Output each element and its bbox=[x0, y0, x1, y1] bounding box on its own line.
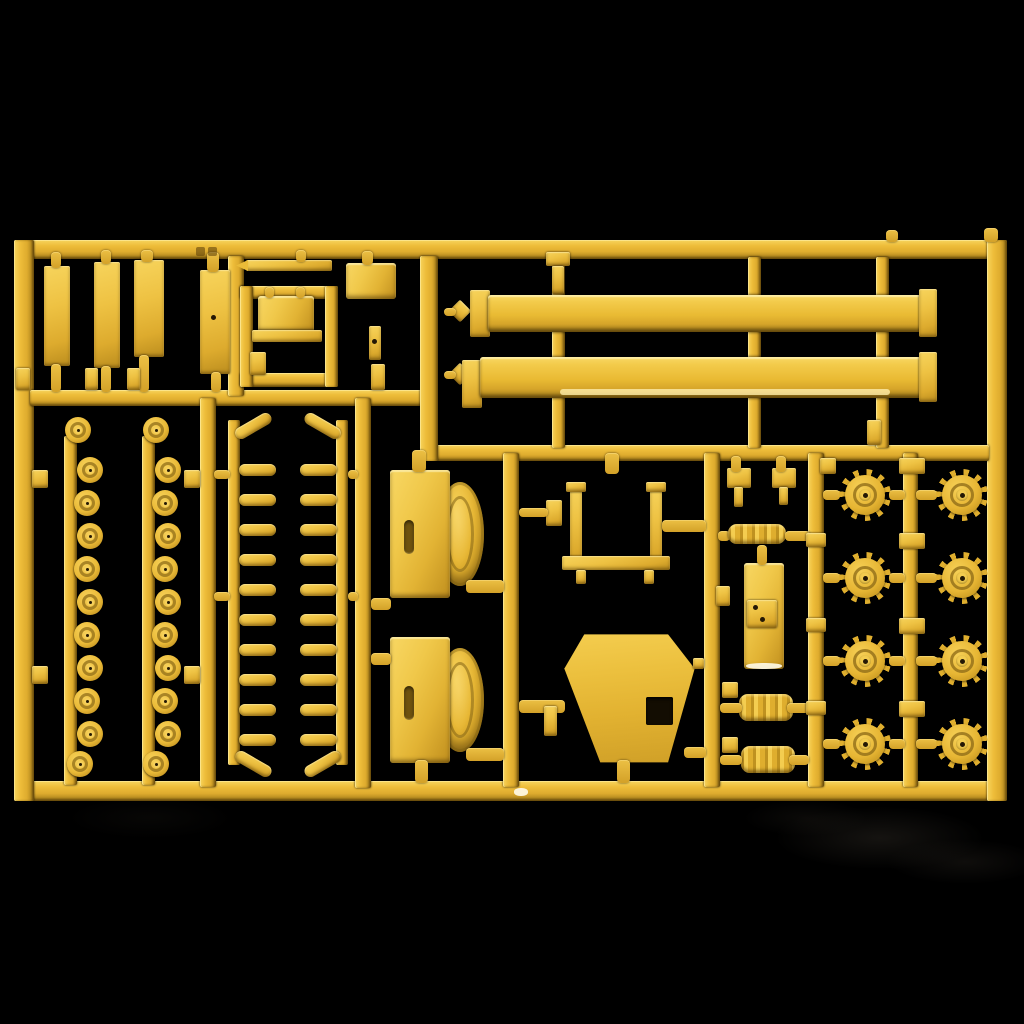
suspension-arm bbox=[300, 584, 337, 596]
hatch-plate bbox=[346, 263, 396, 299]
small-tab bbox=[693, 658, 704, 669]
suspension-arm bbox=[300, 494, 337, 506]
road-wheel-hole bbox=[167, 469, 170, 472]
gate-stub bbox=[889, 739, 905, 749]
road-wheel-hole bbox=[167, 601, 170, 604]
gate-stub bbox=[101, 250, 111, 264]
road-wheel-hole bbox=[77, 429, 80, 432]
suspension-arm bbox=[239, 584, 276, 596]
drive-sprocket-hole bbox=[960, 742, 965, 747]
gate-runner bbox=[876, 257, 889, 299]
gate-stub bbox=[916, 490, 937, 500]
gate-stub bbox=[348, 592, 358, 601]
gate-stub bbox=[776, 456, 786, 472]
mold-mark bbox=[208, 247, 217, 256]
gate-stub bbox=[415, 760, 428, 783]
suspension-arm bbox=[239, 704, 276, 716]
gate-stub bbox=[823, 656, 840, 666]
final-drive-drum-ring bbox=[446, 662, 474, 738]
suspension-arm bbox=[300, 644, 337, 656]
bracket-part bbox=[546, 252, 570, 266]
gate-runner bbox=[748, 396, 761, 448]
runner-gate bbox=[806, 618, 826, 632]
gate-stub bbox=[684, 747, 706, 758]
suspension-plate bbox=[200, 270, 230, 374]
gate-stub bbox=[444, 308, 456, 316]
runner-gate bbox=[899, 533, 925, 549]
small-tab bbox=[85, 368, 98, 390]
small-tab bbox=[371, 364, 385, 390]
fender-end bbox=[919, 289, 937, 337]
fender-end bbox=[462, 360, 482, 408]
fender-end bbox=[919, 352, 937, 402]
bracket-foot bbox=[644, 570, 654, 584]
small-tab bbox=[722, 737, 738, 753]
gate-stub bbox=[889, 573, 905, 583]
suspension-arm bbox=[300, 554, 337, 566]
bracket-cap bbox=[566, 482, 586, 492]
gate-stub bbox=[265, 287, 274, 298]
hole-detail bbox=[211, 315, 216, 320]
gate-stub bbox=[296, 250, 306, 262]
bracket-bar bbox=[562, 556, 670, 570]
frame-bottom bbox=[240, 373, 338, 387]
hole-detail bbox=[760, 617, 765, 622]
bracket-part bbox=[552, 266, 564, 294]
road-wheel-hole bbox=[86, 700, 89, 703]
small-tab bbox=[544, 706, 557, 736]
muffler bbox=[741, 746, 795, 773]
suspension-arm bbox=[300, 524, 337, 536]
suspension-arm bbox=[239, 494, 276, 506]
gate-stub bbox=[889, 656, 905, 666]
drive-sprocket-hole bbox=[863, 576, 868, 581]
gate-stub bbox=[211, 372, 221, 392]
small-box bbox=[747, 600, 777, 628]
road-wheel-hole bbox=[167, 535, 170, 538]
gate-stub bbox=[916, 739, 937, 749]
road-wheel-hole bbox=[167, 667, 170, 670]
runner bbox=[420, 256, 438, 461]
drive-sprocket-hole bbox=[960, 659, 965, 664]
fender-end bbox=[470, 290, 490, 337]
road-wheel-hole bbox=[89, 667, 92, 670]
runner bbox=[503, 453, 519, 787]
gate-stub bbox=[51, 252, 61, 268]
stowage-box-flange bbox=[252, 330, 322, 342]
specular-highlight bbox=[746, 663, 782, 669]
bracket-cap bbox=[646, 482, 666, 492]
final-drive-housing bbox=[390, 637, 450, 763]
runner-gate bbox=[899, 618, 925, 634]
runner-gate bbox=[899, 458, 925, 474]
small-tab bbox=[32, 666, 48, 684]
suspension-arm bbox=[300, 674, 337, 686]
suspension-arm bbox=[300, 704, 337, 716]
small-part bbox=[546, 500, 562, 526]
suspension-arm bbox=[239, 554, 276, 566]
runner bbox=[704, 453, 720, 787]
hole-detail bbox=[372, 339, 377, 344]
rod-part bbox=[246, 260, 332, 271]
wheel-runner bbox=[142, 436, 155, 785]
drive-sprocket-hole bbox=[863, 742, 868, 747]
drive-sprocket-hole bbox=[960, 493, 965, 498]
gate-stub bbox=[141, 250, 153, 262]
runner-gate bbox=[820, 458, 836, 474]
hole-detail bbox=[753, 605, 758, 610]
gate-stub bbox=[412, 450, 426, 472]
left-rail bbox=[14, 240, 34, 801]
gate-stub bbox=[51, 364, 61, 392]
road-wheel-hole bbox=[89, 535, 92, 538]
suspension-plate bbox=[94, 262, 120, 368]
bracket-pin bbox=[779, 487, 788, 505]
runner-gate bbox=[806, 533, 826, 547]
gate-stub bbox=[605, 453, 619, 474]
gate-stub bbox=[466, 580, 504, 593]
sprue-frame bbox=[0, 0, 1024, 1024]
gate-stub bbox=[731, 456, 741, 472]
suspension-plate bbox=[134, 260, 164, 357]
suspension-arm bbox=[239, 674, 276, 686]
gate-stub bbox=[823, 490, 840, 500]
suspension-arm bbox=[239, 644, 276, 656]
small-tab bbox=[16, 368, 30, 390]
gate-stub bbox=[720, 755, 742, 765]
gate-stub bbox=[823, 573, 840, 583]
gate-stub bbox=[296, 287, 305, 298]
gate-stub bbox=[348, 470, 358, 479]
final-drive-housing bbox=[390, 470, 450, 598]
fender bbox=[488, 295, 924, 332]
suspension-arm bbox=[239, 464, 276, 476]
top-rail bbox=[14, 240, 1007, 259]
suspension-plate bbox=[44, 266, 70, 366]
gate-stub bbox=[519, 508, 548, 517]
final-drive-drum-ring bbox=[446, 496, 474, 572]
small-tab bbox=[722, 682, 738, 698]
suspension-arm bbox=[239, 734, 276, 746]
road-wheel-hole bbox=[164, 634, 167, 637]
frame-right bbox=[325, 286, 338, 387]
drive-sprocket-hole bbox=[960, 576, 965, 581]
gate-stub bbox=[139, 355, 149, 392]
gate-stub bbox=[720, 703, 742, 713]
small-tab bbox=[127, 368, 140, 390]
gate-stub bbox=[823, 739, 840, 749]
road-wheel-hole bbox=[86, 502, 89, 505]
gate-stub bbox=[662, 520, 706, 532]
road-wheel-hole bbox=[155, 763, 158, 766]
runner bbox=[200, 398, 216, 787]
small-tab bbox=[867, 420, 881, 445]
housing-slot bbox=[404, 520, 414, 554]
bracket-foot bbox=[576, 570, 586, 584]
drive-sprocket-hole bbox=[863, 659, 868, 664]
road-wheel-hole bbox=[89, 601, 92, 604]
suspension-arm bbox=[239, 524, 276, 536]
gate-stub bbox=[371, 598, 391, 610]
gate-stub bbox=[617, 760, 630, 783]
gate-stub bbox=[214, 592, 230, 601]
gate-stub bbox=[214, 470, 230, 479]
gate-stub bbox=[789, 755, 809, 765]
runner-gate bbox=[806, 701, 826, 715]
fender-highlight bbox=[560, 389, 890, 395]
gate-runner bbox=[552, 396, 565, 448]
suspension-arm bbox=[239, 614, 276, 626]
gate-stub bbox=[371, 653, 391, 665]
small-tab bbox=[32, 470, 48, 488]
small-tab bbox=[250, 352, 266, 375]
road-wheel-hole bbox=[164, 700, 167, 703]
gate-stub bbox=[889, 490, 905, 500]
hull-plate bbox=[563, 633, 696, 765]
gate-stub bbox=[444, 371, 456, 379]
small-tab bbox=[184, 666, 200, 684]
runner-gate bbox=[899, 701, 925, 717]
specular-highlight bbox=[514, 788, 528, 796]
right-rail bbox=[987, 240, 1007, 801]
gate-stub bbox=[916, 656, 937, 666]
road-wheel-hole bbox=[155, 429, 158, 432]
hull-plate-opening bbox=[646, 697, 673, 725]
muffler bbox=[739, 694, 793, 721]
road-wheel-hole bbox=[89, 733, 92, 736]
suspension-arm bbox=[300, 614, 337, 626]
axle-part bbox=[728, 524, 786, 544]
bracket-pin bbox=[734, 487, 743, 507]
gate-stub bbox=[916, 573, 937, 583]
gate-stub bbox=[757, 545, 767, 565]
housing-slot bbox=[404, 686, 414, 720]
small-tab bbox=[184, 470, 200, 488]
gate-runner bbox=[748, 257, 761, 299]
angled-arm bbox=[233, 411, 274, 441]
gate-stub bbox=[101, 366, 111, 392]
sprue-nub bbox=[984, 228, 998, 242]
wheel-runner bbox=[64, 436, 77, 785]
stowage-box bbox=[258, 296, 314, 332]
gate-stub bbox=[466, 748, 504, 761]
sprue-nub bbox=[886, 230, 898, 242]
drive-sprocket-hole bbox=[863, 493, 868, 498]
suspension-arm bbox=[300, 464, 337, 476]
road-wheel-hole bbox=[167, 733, 170, 736]
gate-stub bbox=[362, 251, 373, 265]
gate-stub bbox=[519, 700, 565, 713]
model-kit-sprue-photo bbox=[0, 0, 1024, 1024]
road-wheel-hole bbox=[89, 469, 92, 472]
road-wheel-hole bbox=[164, 568, 167, 571]
small-tab bbox=[716, 586, 730, 606]
arm-runner bbox=[336, 420, 348, 765]
suspension-arm bbox=[300, 734, 337, 746]
road-wheel-hole bbox=[86, 634, 89, 637]
mold-mark bbox=[196, 247, 205, 256]
road-wheel-hole bbox=[164, 502, 167, 505]
road-wheel-hole bbox=[79, 763, 82, 766]
road-wheel-hole bbox=[86, 568, 89, 571]
